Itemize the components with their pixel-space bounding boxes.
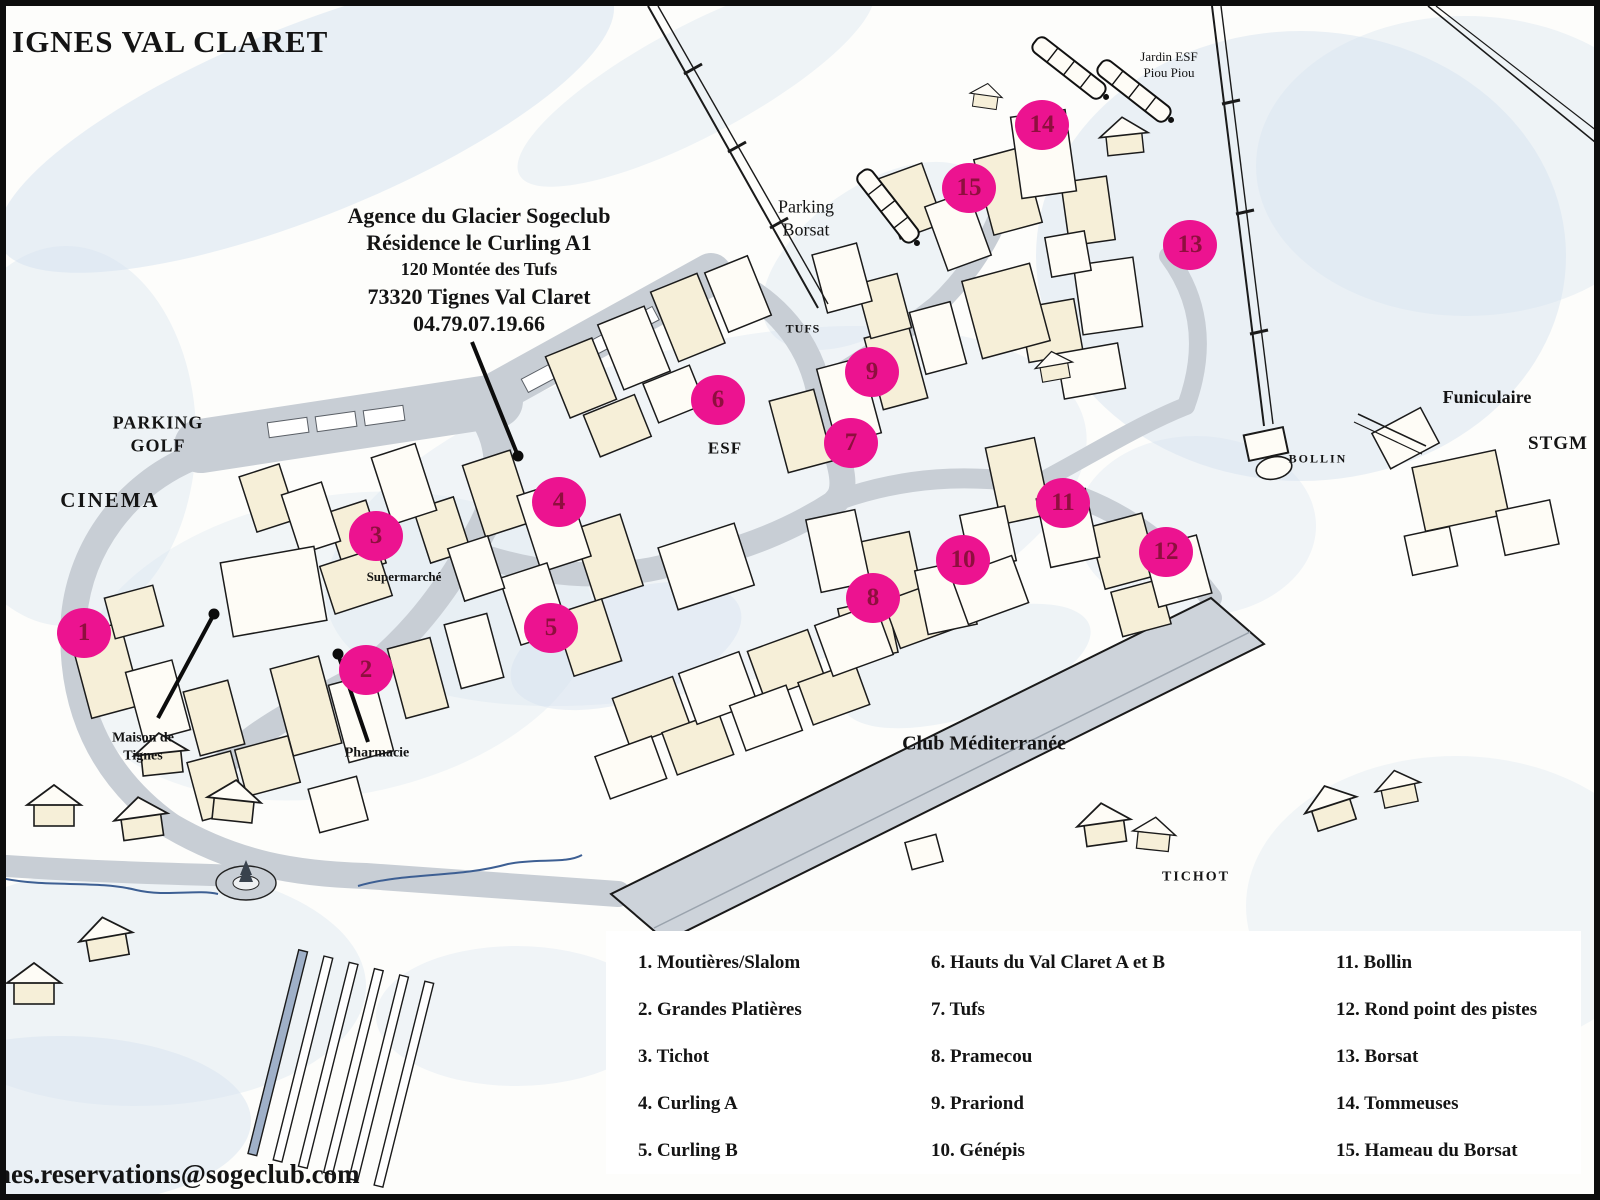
map-marker-7: 7	[824, 418, 878, 468]
map-marker-8: 8	[846, 573, 900, 623]
label-funiculaire: Funiculaire	[1443, 386, 1532, 409]
legend-item-4: 4. Curling A	[638, 1093, 802, 1115]
legend-item-6: 6. Hauts du Val Claret A et B	[931, 952, 1165, 974]
map-marker-1: 1	[57, 608, 111, 658]
map-marker-13: 13	[1163, 220, 1217, 270]
legend-item-10: 10. Génépis	[931, 1140, 1165, 1162]
map-marker-5: 5	[524, 603, 578, 653]
legend-column-1: 1. Moutières/Slalom2. Grandes Platières3…	[638, 952, 802, 1162]
legend-column-2: 6. Hauts du Val Claret A et B7. Tufs8. P…	[931, 952, 1165, 1162]
label-pharmacie: Pharmacie	[345, 744, 410, 762]
label-parking-borsat: Parking Borsat	[778, 196, 834, 241]
agency-address-block: Agence du Glacier Sogeclub Résidence le …	[314, 202, 644, 337]
agency-city: 73320 Tignes Val Claret	[314, 283, 644, 310]
label-tufs: TUFS	[786, 322, 821, 337]
legend-item-8: 8. Pramecou	[931, 1046, 1165, 1068]
map-marker-9: 9	[845, 347, 899, 397]
page-title: IGNES VAL CLARET	[12, 24, 328, 60]
map-marker-6: 6	[691, 375, 745, 425]
label-jardin-esf-piou-piou: Jardin ESF Piou Piou	[1140, 49, 1197, 82]
agency-name: Agence du Glacier Sogeclub	[314, 202, 644, 229]
label-tichot: TICHOT	[1162, 868, 1230, 886]
map-marker-2: 2	[339, 645, 393, 695]
map-marker-10: 10	[936, 535, 990, 585]
label-esf: ESF	[708, 437, 742, 458]
map-marker-14: 14	[1015, 100, 1069, 150]
label-stgm: STGM	[1528, 432, 1588, 456]
label-club-mediterranee: Club Méditerranée	[902, 732, 1066, 757]
label-parking-golf: PARKING GOLF	[113, 412, 204, 457]
legend-item-9: 9. Prariond	[931, 1093, 1165, 1115]
map-marker-3: 3	[349, 511, 403, 561]
legend-item-11: 11. Bollin	[1336, 952, 1537, 974]
map-page: IGNES VAL CLARET Agence du Glacier Sogec…	[0, 0, 1600, 1200]
agency-phone: 04.79.07.19.66	[314, 310, 644, 337]
label-maison-de-tignes: Maison de Tignes	[112, 730, 174, 765]
map-marker-11: 11	[1036, 478, 1090, 528]
label-cinema: CINEMA	[60, 487, 160, 513]
label-supermarche: Supermarché	[367, 569, 442, 585]
map-marker-12: 12	[1139, 527, 1193, 577]
legend-item-15: 15. Hameau du Borsat	[1336, 1140, 1537, 1162]
label-bollin: BOLLIN	[1289, 452, 1348, 467]
legend-item-1: 1. Moutières/Slalom	[638, 952, 802, 974]
residence-legend: 1. Moutières/Slalom2. Grandes Platières3…	[606, 934, 1578, 1172]
legend-item-13: 13. Borsat	[1336, 1046, 1537, 1068]
legend-column-3: 11. Bollin12. Rond point des pistes13. B…	[1336, 952, 1537, 1162]
legend-item-3: 3. Tichot	[638, 1046, 802, 1068]
agency-residence: Résidence le Curling A1	[314, 229, 644, 256]
map-marker-15: 15	[942, 163, 996, 213]
agency-street: 120 Montée des Tufs	[314, 256, 644, 283]
legend-item-14: 14. Tommeuses	[1336, 1093, 1537, 1115]
map-marker-4: 4	[532, 477, 586, 527]
legend-item-5: 5. Curling B	[638, 1140, 802, 1162]
legend-item-2: 2. Grandes Platières	[638, 999, 802, 1021]
reservation-email: nes.reservations@sogeclub.com	[0, 1159, 360, 1190]
legend-item-7: 7. Tufs	[931, 999, 1165, 1021]
legend-item-12: 12. Rond point des pistes	[1336, 999, 1537, 1021]
